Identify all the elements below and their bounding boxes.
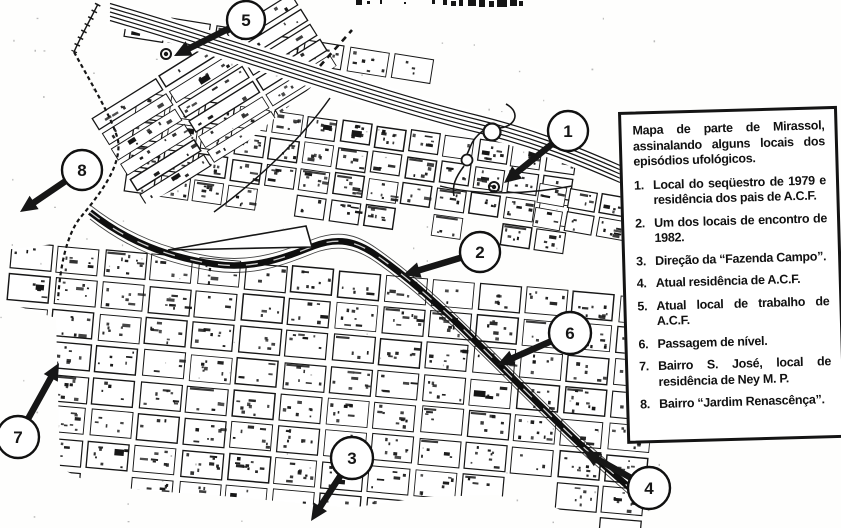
legend-item-text: Atual local de trabalho de A.C.F.: [656, 294, 830, 330]
marker-number: 6: [565, 324, 574, 343]
marker-arrow: [415, 258, 461, 272]
map-marker-3: 3: [311, 437, 373, 521]
legend-item-1: 1.Local do seqüestro de 1979 e residênci…: [634, 173, 827, 209]
legend-item-list: 1.Local do seqüestro de 1979 e residênci…: [634, 173, 832, 413]
legend-item-number: 6.: [638, 336, 657, 352]
legend-item-8: 8.Bairro “Jardim Renascênça”.: [640, 392, 832, 413]
legend-item-2: 2.Um dos locais de encontro de 1982.: [635, 211, 828, 247]
marker-arrow: [30, 181, 66, 205]
marker-number: 5: [241, 11, 250, 30]
legend-item-text: Um dos locais de encontro de 1982.: [654, 211, 828, 247]
marker-number: 3: [347, 449, 356, 468]
marker-number: 4: [644, 479, 654, 498]
scanned-map-page: 12345678 Mapa de parte de Mirassol, assi…: [0, 0, 841, 528]
marker-number: 2: [475, 243, 484, 262]
legend-item-number: 4.: [637, 276, 656, 292]
roundabout: [484, 124, 501, 141]
legend-item-text: Atual residência de A.C.F.: [656, 271, 829, 291]
legend-item-number: 8.: [640, 397, 659, 413]
map-marker-7: 7: [0, 363, 59, 458]
marker-number: 8: [77, 161, 86, 180]
map-marker-2: 2: [403, 232, 500, 278]
legend-item-number: 3.: [636, 254, 655, 270]
legend-item-text: Direção da “Fazenda Campo”.: [655, 249, 828, 269]
legend-item-7: 7.Bairro S. José, local de residência de…: [639, 354, 832, 390]
map-marker-8: 8: [20, 150, 102, 212]
legend-item-number: 7.: [639, 359, 659, 391]
legend-item-3: 3.Direção da “Fazenda Campo”.: [636, 249, 828, 270]
marker-number: 1: [563, 122, 572, 141]
legend-item-5: 5.Atual local de trabalho de A.C.F.: [637, 294, 830, 330]
legend-item-6: 6.Passagem de nível.: [638, 332, 830, 353]
legend-item-4: 4.Atual residência de A.C.F.: [637, 271, 829, 292]
cropped-page-text-fragment: [356, 0, 523, 7]
legend-item-text: Bairro S. José, local de residência de N…: [658, 354, 832, 390]
legend-title: Mapa de parte de Mirassol, assinalando a…: [632, 118, 825, 170]
legend-item-text: Passagem de nível.: [657, 332, 830, 352]
roundabout: [462, 155, 473, 166]
legend-item-text: Bairro “Jardim Renascênça”.: [659, 392, 832, 412]
legend-item-number: 1.: [634, 178, 654, 210]
location-dot: [161, 49, 171, 59]
legend-item-number: 2.: [635, 216, 655, 248]
legend-item-number: 5.: [637, 299, 657, 331]
road-fork-triangle: [168, 226, 312, 250]
legend-item-text: Local do seqüestro de 1979 e residência …: [653, 173, 827, 209]
marker-arrow: [28, 374, 53, 419]
map-legend: Mapa de parte de Mirassol, assinalando a…: [618, 106, 841, 444]
marker-number: 7: [13, 428, 22, 447]
